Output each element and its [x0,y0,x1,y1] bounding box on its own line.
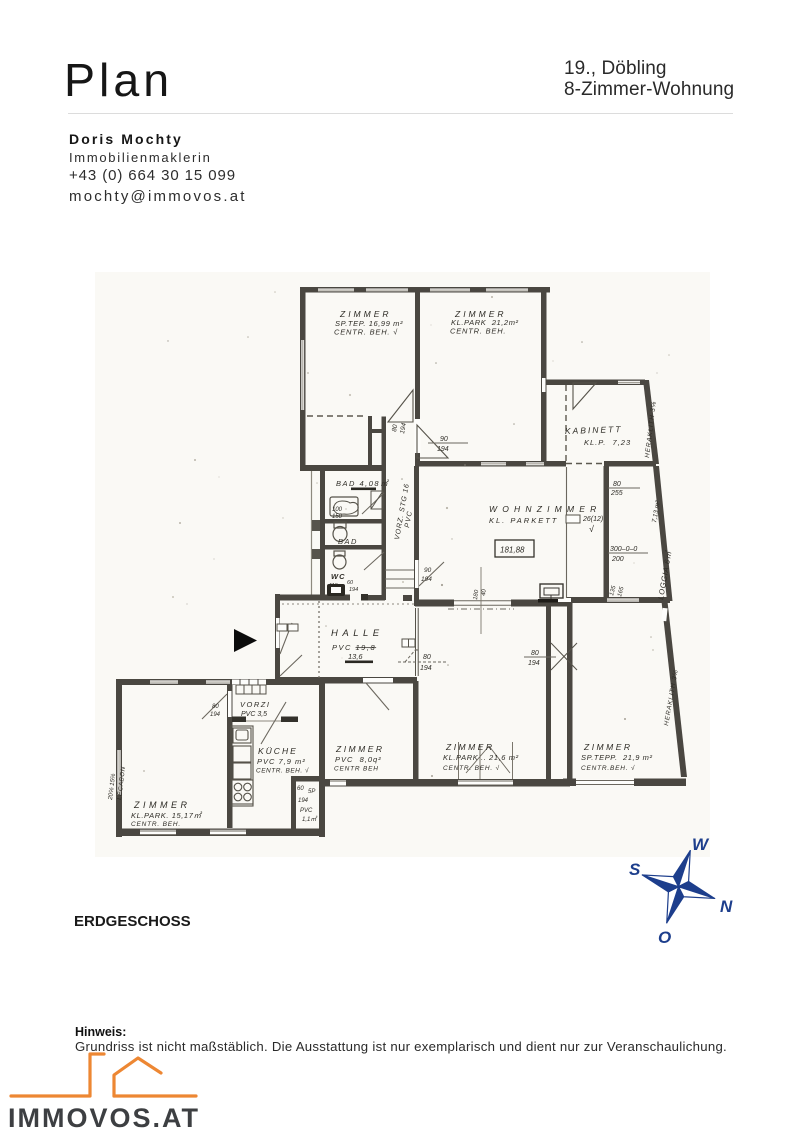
svg-text:PVC 3,5: PVC 3,5 [241,711,267,718]
svg-text:CENTR. BEH. √: CENTR. BEH. √ [334,328,398,337]
svg-text:ZIMMER: ZIMMER [133,800,191,810]
svg-text:KL.PARK. 15,17㎡: KL.PARK. 15,17㎡ [131,811,202,820]
svg-text:√: √ [589,524,594,534]
svg-text:S: S [629,860,641,879]
svg-text:CENTR. BEH. √: CENTR. BEH. √ [443,764,500,772]
svg-text:80: 80 [423,654,431,661]
svg-text:O: O [658,928,671,947]
svg-text:WC: WC [331,572,346,581]
svg-text:60: 60 [297,786,304,792]
svg-text:ZIMMER: ZIMMER [335,744,385,754]
svg-text:PVC 19,8: PVC 19,8 [332,643,376,652]
svg-text:1,1㎡: 1,1㎡ [302,815,318,823]
svg-text:HALLE: HALLE [331,628,384,639]
svg-text:194: 194 [349,587,358,593]
svg-text:BAD: BAD [338,537,358,546]
svg-text:WOHNZIMMER: WOHNZIMMER [489,504,601,514]
svg-text:100: 100 [332,507,343,513]
svg-text:KL.PARK .. 21,6 m²: KL.PARK .. 21,6 m² [443,753,519,762]
svg-text:CENTR. BEH.: CENTR. BEH. [450,327,506,336]
svg-text:13,6: 13,6 [348,652,363,661]
svg-text:255: 255 [610,490,623,497]
svg-text:CENTR. BEH. √: CENTR. BEH. √ [256,767,309,775]
svg-text:300–0–0: 300–0–0 [610,546,637,553]
svg-text:PVC 7,9 m²: PVC 7,9 m² [257,757,306,766]
svg-text:5P: 5P [308,789,315,795]
svg-text:194: 194 [420,665,432,672]
svg-text:80: 80 [212,704,219,710]
svg-text:KL. PARKETT: KL. PARKETT [489,516,558,525]
svg-text:90: 90 [440,436,448,443]
svg-text:194: 194 [421,576,432,583]
svg-text:115: 115 [329,583,339,589]
svg-text:KABINETT: KABINETT [565,424,623,436]
svg-text:PVC: PVC [300,808,313,814]
svg-text:194: 194 [437,446,449,453]
svg-text:CENTR BEH: CENTR BEH [334,766,379,773]
svg-text:90: 90 [424,567,432,574]
svg-text:N: N [720,897,733,916]
svg-text:200: 200 [611,556,624,563]
svg-text:ZIMMER: ZIMMER [583,742,633,752]
svg-text:VORZI: VORZI [240,700,270,709]
svg-text:BAD 4,08㎡: BAD 4,08㎡ [336,479,389,488]
svg-text:194: 194 [298,798,309,804]
svg-text:80: 80 [613,481,621,488]
svg-text:ZIMMER: ZIMMER [445,742,495,752]
svg-text:CENTR. BEH.: CENTR. BEH. [131,821,181,828]
svg-text:KL.P. 7,23: KL.P. 7,23 [584,438,631,447]
svg-text:150: 150 [332,514,343,520]
svg-text:26(12): 26(12) [582,516,603,523]
svg-text:KÜCHE: KÜCHE [258,746,298,756]
svg-text:PVC 8,0q²: PVC 8,0q² [335,755,382,764]
svg-text:194: 194 [210,712,221,718]
svg-text:W: W [692,835,710,854]
svg-text:ZIMMER: ZIMMER [339,309,392,319]
svg-text:181,88: 181,88 [500,546,525,555]
svg-text:SP.TEPP. 21,9 m²: SP.TEPP. 21,9 m² [581,753,653,762]
svg-text:194: 194 [528,660,540,667]
svg-text:CENTR.BEH. √: CENTR.BEH. √ [581,764,635,772]
svg-text:80: 80 [531,650,539,657]
svg-text:60: 60 [347,580,354,586]
